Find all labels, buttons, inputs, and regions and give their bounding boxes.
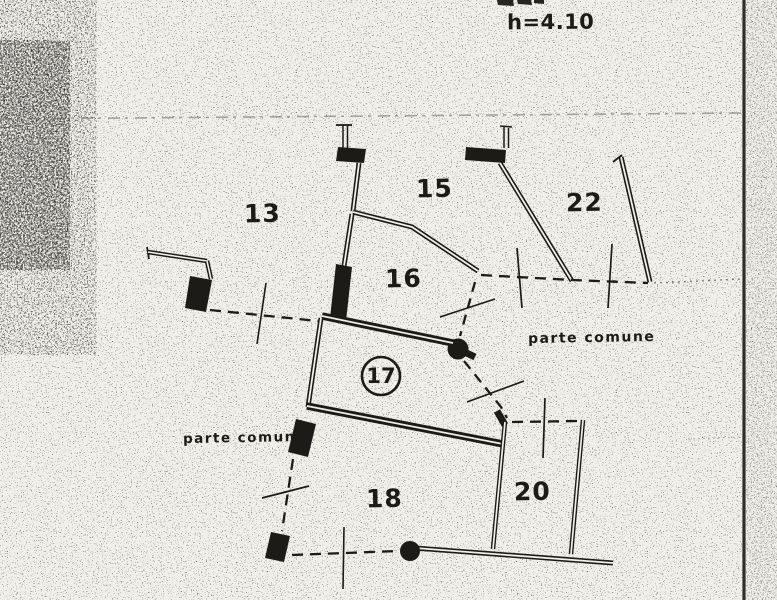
room-label-17: 17 [360,364,402,388]
room-label-22: 22 [566,188,603,218]
common-area-label-upper: parte comune [528,329,656,347]
room-label-18: 18 [366,484,403,514]
room-label-13: 13 [244,199,281,229]
room-label-15: 15 [416,174,453,204]
room-label-20: 20 [514,477,551,507]
room-label-16: 16 [385,264,422,294]
floor-plan-scan: h=4.10 13 15 16 17 18 20 22 parte comune… [0,0,777,600]
junction-dot-lower [400,541,420,561]
height-annotation: h=4.10 [507,10,595,35]
common-area-label-lower: parte comune [183,429,307,447]
